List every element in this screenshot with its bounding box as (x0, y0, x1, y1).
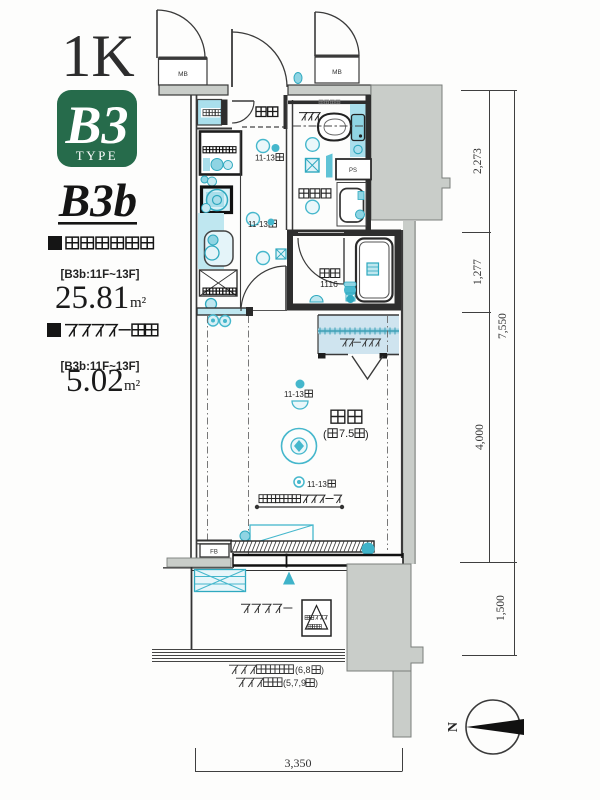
svg-text:): ) (315, 678, 318, 688)
svg-text:MB: MB (178, 71, 188, 78)
svg-text:4,000: 4,000 (474, 424, 486, 450)
svg-text:): ) (321, 665, 324, 675)
svg-text:FB: FB (210, 550, 218, 556)
svg-text:m²: m² (124, 378, 141, 394)
svg-text:7.5: 7.5 (339, 428, 354, 440)
svg-text:m²: m² (130, 295, 147, 311)
svg-text:B3b: B3b (58, 175, 137, 227)
svg-text:B3: B3 (64, 95, 128, 155)
svg-text:1116: 1116 (320, 279, 338, 289)
svg-text:1K: 1K (61, 23, 134, 89)
svg-text:(5,7,9: (5,7,9 (283, 678, 306, 688)
svg-text:2,273: 2,273 (472, 148, 484, 174)
svg-text:MB: MB (332, 69, 342, 76)
svg-text:(: ( (323, 429, 327, 441)
svg-text:11-13: 11-13 (248, 220, 268, 229)
svg-text:25.81: 25.81 (55, 280, 129, 316)
svg-text:11-13: 11-13 (284, 390, 304, 399)
svg-text:3,350: 3,350 (285, 756, 312, 770)
svg-text:7,550: 7,550 (497, 313, 509, 339)
svg-text:PS: PS (349, 168, 357, 174)
svg-text:5.02: 5.02 (66, 363, 124, 399)
svg-text:TYPE: TYPE (76, 148, 119, 163)
svg-text:1,277: 1,277 (472, 259, 484, 285)
svg-text:1,500: 1,500 (495, 595, 507, 621)
svg-text:N: N (446, 722, 461, 732)
svg-text:): ) (365, 429, 369, 441)
svg-text:(6,8: (6,8 (295, 665, 311, 675)
svg-text:11-13: 11-13 (255, 154, 275, 163)
svg-text:11-13: 11-13 (307, 480, 327, 489)
